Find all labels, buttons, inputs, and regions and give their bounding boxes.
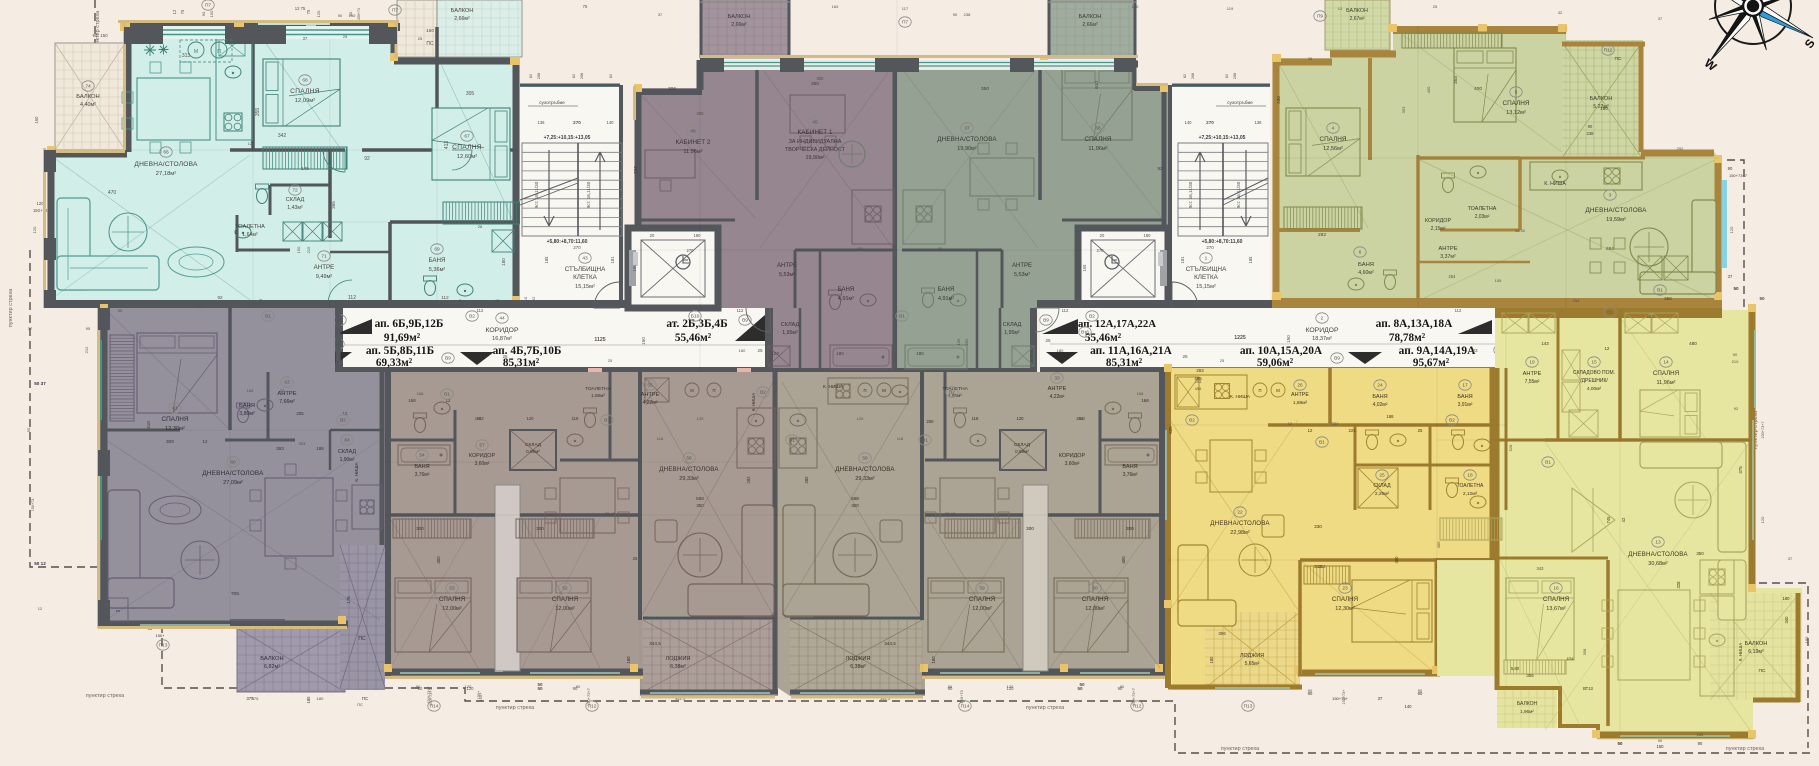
svg-text:2,03м²: 2,03м² bbox=[1475, 214, 1490, 220]
svg-text:СКЛАДОВО ПОМ.: СКЛАДОВО ПОМ. bbox=[1573, 370, 1615, 376]
svg-text:ап. 5Б,8Б,11Б: ап. 5Б,8Б,11Б bbox=[366, 345, 434, 357]
svg-text:400: 400 bbox=[436, 556, 441, 564]
svg-text:254: 254 bbox=[1449, 274, 1457, 279]
svg-text:64: 64 bbox=[344, 438, 350, 444]
svg-text:50: 50 bbox=[1759, 296, 1765, 301]
svg-text:82: 82 bbox=[572, 74, 576, 78]
svg-text:215: 215 bbox=[258, 298, 263, 305]
svg-text:118: 118 bbox=[572, 416, 579, 421]
svg-text:155: 155 bbox=[956, 338, 961, 345]
svg-text:400: 400 bbox=[1121, 556, 1126, 564]
svg-text:470: 470 bbox=[108, 190, 117, 196]
svg-text:270: 270 bbox=[1206, 120, 1214, 125]
svg-text:19,59м²: 19,59м² bbox=[1606, 217, 1626, 223]
svg-text:СПАЛНЯ: СПАЛНЯ bbox=[1543, 596, 1569, 603]
svg-text:270: 270 bbox=[687, 248, 695, 253]
svg-text:185: 185 bbox=[1248, 256, 1253, 264]
svg-text:42: 42 bbox=[1621, 517, 1626, 522]
svg-text:25: 25 bbox=[1220, 358, 1225, 363]
svg-text:150: 150 bbox=[296, 246, 301, 253]
svg-text:12: 12 bbox=[1338, 6, 1343, 11]
svg-text:90: 90 bbox=[338, 13, 343, 18]
svg-text:262: 262 bbox=[475, 416, 482, 421]
svg-text:КАБИНЕТ 2: КАБИНЕТ 2 bbox=[676, 139, 711, 146]
svg-text:3: 3 bbox=[1609, 193, 1612, 199]
svg-text:12,60м²: 12,60м² bbox=[457, 154, 477, 160]
svg-text:20: 20 bbox=[1100, 233, 1105, 238]
svg-text:123: 123 bbox=[771, 351, 779, 356]
svg-text:29,33м²: 29,33м² bbox=[855, 476, 875, 482]
svg-text:12: 12 bbox=[1288, 421, 1293, 426]
svg-text:СКЛАД: СКЛАД bbox=[338, 449, 356, 455]
svg-text:15,15м²: 15,15м² bbox=[1196, 284, 1216, 290]
svg-text:149: 149 bbox=[301, 166, 309, 171]
svg-text:12 75: 12 75 bbox=[295, 6, 306, 11]
svg-text:37: 37 bbox=[1378, 696, 1383, 701]
svg-text:282: 282 bbox=[746, 476, 751, 484]
svg-text:2,26м²: 2,26м² bbox=[1375, 491, 1390, 497]
svg-text:В1: В1 bbox=[1319, 440, 1325, 446]
svg-text:ПС: ПС bbox=[1759, 668, 1766, 674]
svg-text:4,22м²: 4,22м² bbox=[1050, 394, 1065, 400]
svg-text:25: 25 bbox=[1433, 4, 1438, 9]
svg-text:13,67м²: 13,67м² bbox=[1546, 606, 1566, 612]
svg-text:пунктир стреха: пунктир стреха bbox=[496, 705, 535, 711]
svg-text:78,78м²: 78,78м² bbox=[1389, 332, 1426, 344]
svg-text:АНТРЕ: АНТРЕ bbox=[777, 263, 797, 269]
svg-text:342: 342 bbox=[278, 133, 287, 139]
svg-text:344,5: 344,5 bbox=[884, 641, 896, 646]
svg-text:293: 293 bbox=[1196, 368, 1204, 373]
svg-text:В2: В2 bbox=[1189, 418, 1195, 424]
svg-text:112: 112 bbox=[932, 368, 939, 373]
svg-text:Вт6: Вт6 bbox=[1081, 330, 1089, 336]
svg-text:В9: В9 bbox=[742, 318, 748, 324]
svg-text:В2: В2 bbox=[1449, 418, 1455, 424]
svg-text:92: 92 bbox=[217, 295, 223, 300]
svg-text:120: 120 bbox=[1007, 684, 1014, 689]
svg-text:112: 112 bbox=[441, 295, 449, 300]
svg-text:3,80м²: 3,80м² bbox=[239, 411, 255, 417]
svg-text:СТЪЛБИЩНА: СТЪЛБИЩНА bbox=[565, 266, 606, 273]
svg-text:160: 160 bbox=[34, 116, 39, 124]
svg-text:КЛЕТКА: КЛЕТКА bbox=[1194, 274, 1219, 281]
svg-text:68: 68 bbox=[302, 78, 308, 84]
svg-text:АНТРЕ: АНТРЕ bbox=[1523, 371, 1542, 377]
svg-text:КЛЕТКА: КЛЕТКА bbox=[573, 274, 598, 281]
svg-text:150+73: 150+73 bbox=[31, 499, 35, 512]
svg-text:В1: В1 bbox=[604, 418, 610, 424]
svg-text:340: 340 bbox=[1784, 616, 1789, 624]
svg-text:ДНЕВНА/СТОЛОВА: ДНЕВНА/СТОЛОВА bbox=[835, 466, 895, 473]
svg-text:50 12: 50 12 bbox=[34, 561, 46, 566]
svg-text:45: 45 bbox=[812, 120, 818, 126]
svg-text:55,46м²: 55,46м² bbox=[675, 332, 712, 344]
svg-text:4: 4 bbox=[1332, 126, 1335, 132]
svg-text:ДНЕВНА/СТОЛОВА: ДНЕВНА/СТОЛОВА bbox=[1585, 207, 1647, 214]
svg-text:180: 180 bbox=[306, 696, 311, 704]
svg-text:350: 350 bbox=[811, 81, 819, 87]
svg-text:ДНЕВНА/СТОЛОВА: ДНЕВНА/СТОЛОВА bbox=[1210, 520, 1270, 527]
svg-text:90: 90 bbox=[348, 11, 353, 16]
svg-text:2: 2 bbox=[1321, 316, 1324, 322]
svg-text:61: 61 bbox=[172, 406, 178, 412]
svg-text:120: 120 bbox=[697, 416, 704, 421]
svg-text:ДНЕВНА/СТОЛОВА: ДНЕВНА/СТОЛОВА bbox=[937, 136, 997, 143]
svg-text:105: 105 bbox=[1495, 278, 1502, 283]
svg-text:160: 160 bbox=[1132, 4, 1139, 9]
svg-text:ТОАЛЕТНА: ТОАЛЕТНА bbox=[1468, 206, 1497, 212]
svg-text:112: 112 bbox=[477, 308, 484, 313]
svg-text:92: 92 bbox=[198, 304, 203, 309]
svg-text:205: 205 bbox=[296, 411, 304, 416]
svg-text:П: П bbox=[217, 49, 221, 55]
svg-text:238: 238 bbox=[1587, 131, 1595, 136]
svg-text:БАЛКОН: БАЛКОН bbox=[1346, 8, 1368, 14]
svg-text:75: 75 bbox=[583, 4, 588, 9]
svg-text:4,91м²: 4,91м² bbox=[938, 296, 954, 302]
svg-text:306: 306 bbox=[697, 111, 705, 116]
svg-text:1125: 1125 bbox=[594, 337, 605, 343]
svg-text:1225: 1225 bbox=[1234, 335, 1246, 341]
svg-text:60: 60 bbox=[230, 460, 236, 466]
svg-text:90: 90 bbox=[26, 427, 31, 432]
svg-text:СПАЛНЯ: СПАЛНЯ bbox=[161, 416, 188, 423]
svg-text:пунктир стреха: пунктир стреха bbox=[86, 693, 125, 699]
svg-text:В2: В2 bbox=[760, 390, 766, 396]
svg-text:270: 270 bbox=[573, 120, 581, 125]
svg-text:П13: П13 bbox=[1244, 704, 1253, 710]
svg-text:43: 43 bbox=[582, 256, 588, 262]
svg-text:Б: Б bbox=[459, 298, 462, 303]
svg-text:270: 270 bbox=[573, 245, 581, 250]
svg-text:ДНЕВНА/СТОЛОВА: ДНЕВНА/СТОЛОВА bbox=[1628, 551, 1688, 558]
svg-text:26: 26 bbox=[1308, 56, 1313, 61]
svg-text:12,00м²: 12,00м² bbox=[442, 606, 462, 612]
svg-text:БАЛКОН: БАЛКОН bbox=[76, 94, 99, 100]
svg-text:69,33м²: 69,33м² bbox=[376, 357, 413, 369]
svg-text:25 48: 25 48 bbox=[605, 511, 616, 516]
svg-text:СПАЛНЯ: СПАЛНЯ bbox=[969, 596, 995, 603]
svg-text:254: 254 bbox=[1573, 298, 1580, 303]
svg-text:90: 90 bbox=[1658, 738, 1663, 743]
svg-text:12: 12 bbox=[203, 439, 208, 444]
svg-text:1: 1 bbox=[1205, 256, 1208, 262]
svg-text:180: 180 bbox=[1783, 596, 1791, 601]
svg-text:25: 25 bbox=[1418, 428, 1423, 433]
svg-text:СКЛАД: СКЛАД bbox=[286, 197, 305, 203]
svg-text:12 50: 12 50 bbox=[1515, 228, 1526, 233]
svg-text:92: 92 bbox=[364, 156, 370, 162]
svg-text:КОРИДОР: КОРИДОР bbox=[1425, 218, 1452, 224]
svg-text:Б10: Б10 bbox=[691, 314, 700, 320]
svg-text:150: 150 bbox=[1286, 335, 1291, 343]
svg-text:27,09м²: 27,09м² bbox=[223, 480, 243, 486]
svg-text:57: 57 bbox=[479, 443, 485, 449]
svg-text:82: 82 bbox=[1183, 74, 1187, 78]
svg-text:3,60м²: 3,60м² bbox=[1065, 461, 1080, 467]
svg-text:120: 120 bbox=[316, 10, 321, 17]
svg-text:5,65м²: 5,65м² bbox=[1245, 661, 1260, 667]
svg-text:В9: В9 bbox=[1334, 356, 1340, 362]
svg-text:СКЛАД: СКЛАД bbox=[1014, 442, 1031, 448]
svg-text:150: 150 bbox=[641, 337, 646, 345]
svg-text:БАНЯ: БАНЯ bbox=[838, 287, 854, 293]
svg-text:82: 82 bbox=[529, 74, 533, 78]
svg-text:300: 300 bbox=[1126, 526, 1134, 531]
svg-text:136: 136 bbox=[538, 120, 546, 125]
svg-text:180: 180 bbox=[739, 348, 746, 353]
svg-text:ат. 2Б,3Б,4Б: ат. 2Б,3Б,4Б bbox=[666, 318, 727, 330]
svg-text:26: 26 bbox=[1297, 383, 1303, 389]
svg-text:168: 168 bbox=[1141, 398, 1149, 403]
svg-text:150: 150 bbox=[1657, 744, 1665, 749]
svg-text:37: 37 bbox=[1728, 274, 1733, 279]
svg-text:В1: В1 bbox=[265, 314, 271, 320]
svg-text:300: 300 bbox=[166, 439, 174, 445]
svg-text:25: 25 bbox=[608, 358, 613, 363]
svg-text:СПАЛНЯ: СПАЛНЯ bbox=[1653, 370, 1679, 377]
svg-text:22: 22 bbox=[1237, 510, 1243, 516]
svg-text:188: 188 bbox=[316, 446, 324, 451]
svg-text:2,66м²: 2,66м² bbox=[1082, 22, 1098, 28]
svg-text:25: 25 bbox=[418, 36, 423, 41]
svg-text:375: 375 bbox=[1738, 466, 1743, 474]
svg-text:+5,80:+8,70:11,60: +5,80:+8,70:11,60 bbox=[547, 239, 588, 245]
svg-text:К. НИША: К. НИША bbox=[1230, 394, 1251, 400]
svg-text:П7: П7 bbox=[902, 20, 908, 26]
svg-text:22,98м²: 22,98м² bbox=[1230, 530, 1250, 536]
svg-text:7,55м²: 7,55м² bbox=[1525, 379, 1540, 385]
svg-text:92: 92 bbox=[1157, 166, 1163, 171]
svg-text:185: 185 bbox=[544, 256, 549, 264]
svg-text:П: П bbox=[863, 388, 866, 393]
svg-text:пунктир стреха: пунктир стреха bbox=[1726, 746, 1765, 752]
svg-text:ПС: ПС bbox=[362, 696, 368, 701]
svg-text:393: 393 bbox=[299, 441, 306, 446]
svg-text:120: 120 bbox=[1729, 226, 1734, 233]
svg-text:350: 350 bbox=[696, 503, 704, 508]
svg-text:180: 180 bbox=[836, 351, 844, 356]
svg-text:В1: В1 bbox=[1607, 310, 1613, 316]
svg-text:ПС: ПС bbox=[358, 636, 366, 642]
svg-text:328: 328 bbox=[1676, 581, 1681, 589]
svg-text:168: 168 bbox=[408, 398, 416, 403]
svg-text:БАЛКОН: БАЛКОН bbox=[1590, 96, 1613, 102]
svg-text:25: 25 bbox=[757, 348, 763, 353]
svg-text:0,89м²: 0,89м² bbox=[1015, 449, 1029, 454]
svg-text:12: 12 bbox=[248, 141, 253, 146]
svg-text:350: 350 bbox=[1664, 296, 1672, 301]
svg-text:37: 37 bbox=[1658, 16, 1663, 21]
svg-text:СПАЛНЯ: СПАЛНЯ bbox=[1319, 136, 1346, 143]
svg-text:23: 23 bbox=[1472, 348, 1478, 353]
svg-text:117: 117 bbox=[902, 6, 909, 11]
svg-text:180: 180 bbox=[916, 351, 924, 356]
svg-text:705: 705 bbox=[231, 591, 239, 597]
svg-text:350: 350 bbox=[981, 86, 989, 92]
svg-text:300: 300 bbox=[1026, 526, 1034, 531]
svg-text:112: 112 bbox=[1062, 308, 1069, 313]
svg-text:56: 56 bbox=[686, 456, 692, 462]
svg-text:82: 82 bbox=[609, 74, 613, 78]
svg-text:БАЛКОН: БАЛКОН bbox=[451, 8, 474, 14]
svg-text:25: 25 bbox=[633, 556, 638, 561]
svg-text:ТОАЛЕТНА: ТОАЛЕТНА bbox=[235, 224, 265, 230]
svg-text:120: 120 bbox=[32, 226, 37, 233]
svg-text:12: 12 bbox=[38, 606, 43, 611]
svg-text:5: 5 bbox=[1515, 90, 1518, 96]
svg-text:БАЛКОН: БАЛКОН bbox=[1079, 14, 1102, 20]
svg-text:306: 306 bbox=[1218, 631, 1226, 636]
svg-text:480: 480 bbox=[1689, 341, 1697, 346]
svg-text:38: 38 bbox=[1095, 126, 1101, 132]
svg-text:В2: В2 bbox=[949, 390, 955, 396]
svg-text:375: 375 bbox=[252, 696, 259, 701]
svg-text:90: 90 bbox=[948, 684, 953, 689]
svg-text:М: М bbox=[690, 388, 694, 393]
svg-text:90: 90 bbox=[1698, 741, 1703, 746]
svg-text:12: 12 bbox=[172, 9, 177, 14]
svg-text:17: 17 bbox=[1462, 383, 1468, 389]
svg-text:91,69м²: 91,69м² bbox=[384, 332, 421, 344]
svg-text:24: 24 bbox=[1377, 383, 1383, 389]
svg-text:+7,25:+10,15:+13,05: +7,25:+10,15:+13,05 bbox=[544, 135, 591, 141]
svg-text:9ст. 16,11/30: 9ст. 16,11/30 bbox=[1236, 181, 1241, 208]
svg-text:ТВОРЧЕСКА ДЕЙНОСТ: ТВОРЧЕСКА ДЕЙНОСТ bbox=[785, 145, 846, 153]
svg-text:2,66м²: 2,66м² bbox=[454, 16, 470, 22]
svg-text:3,76м²: 3,76м² bbox=[415, 472, 430, 478]
svg-text:90: 90 bbox=[1728, 166, 1733, 171]
svg-text:4,00м²: 4,00м² bbox=[1587, 386, 1602, 392]
svg-text:221: 221 bbox=[1332, 421, 1339, 426]
svg-text:270: 270 bbox=[1097, 248, 1105, 253]
svg-text:59,06м²: 59,06м² bbox=[1257, 357, 1294, 369]
svg-text:ПС: ПС bbox=[357, 702, 363, 707]
svg-text:В9: В9 bbox=[445, 356, 451, 362]
svg-text:3,37м²: 3,37м² bbox=[1440, 254, 1456, 260]
svg-text:В1: В1 bbox=[899, 314, 905, 320]
svg-text:120: 120 bbox=[1017, 416, 1025, 421]
svg-text:262: 262 bbox=[964, 338, 969, 345]
svg-text:112: 112 bbox=[737, 308, 744, 313]
svg-text:95: 95 bbox=[86, 326, 91, 331]
svg-text:268: 268 bbox=[537, 73, 541, 79]
svg-text:пунктир стреха: пунктир стреха bbox=[1221, 746, 1260, 752]
svg-text:П7: П7 bbox=[205, 3, 211, 9]
svg-text:25: 25 bbox=[1182, 354, 1188, 359]
svg-text:67: 67 bbox=[464, 134, 470, 140]
svg-text:528: 528 bbox=[1508, 444, 1513, 451]
svg-text:262: 262 bbox=[1079, 416, 1086, 421]
svg-text:ПС: ПС bbox=[426, 41, 434, 47]
svg-text:5,53м²: 5,53м² bbox=[1014, 272, 1030, 278]
svg-text:635: 635 bbox=[1168, 426, 1173, 434]
svg-text:К. НИША: К. НИША bbox=[1544, 181, 1566, 187]
svg-text:90: 90 bbox=[1588, 124, 1593, 129]
svg-text:72: 72 bbox=[292, 188, 298, 194]
svg-text:В1: В1 bbox=[444, 392, 450, 398]
svg-text:В1: В1 bbox=[789, 438, 795, 444]
svg-text:АНТРЕ: АНТРЕ bbox=[314, 264, 335, 271]
svg-text:165: 165 bbox=[1082, 264, 1087, 272]
svg-text:118: 118 bbox=[972, 416, 979, 421]
svg-text:140: 140 bbox=[1405, 704, 1413, 709]
svg-text:СПАЛНЯ: СПАЛНЯ bbox=[1332, 596, 1358, 603]
svg-text:168: 168 bbox=[247, 388, 254, 393]
svg-text:53: 53 bbox=[449, 586, 455, 592]
svg-text:К. НИША: К. НИША bbox=[1738, 643, 1743, 661]
svg-text:160: 160 bbox=[426, 28, 434, 34]
svg-text:120: 120 bbox=[1760, 516, 1765, 523]
svg-text:23: 23 bbox=[1342, 586, 1348, 592]
svg-text:330: 330 bbox=[1314, 524, 1322, 529]
svg-text:5,80: 5,80 bbox=[1511, 666, 1520, 671]
svg-text:50: 50 bbox=[1079, 682, 1085, 687]
svg-text:25: 25 bbox=[502, 354, 508, 359]
svg-text:150+73+: 150+73+ bbox=[1342, 689, 1346, 705]
svg-text:150: 150 bbox=[209, 10, 214, 17]
svg-text:37: 37 bbox=[303, 36, 308, 41]
svg-text:16: 16 bbox=[1553, 586, 1559, 592]
svg-text:455: 455 bbox=[1195, 386, 1202, 391]
svg-text:292: 292 bbox=[1318, 232, 1326, 238]
svg-text:13: 13 bbox=[1655, 540, 1661, 546]
svg-text:1,43м²: 1,43м² bbox=[287, 205, 303, 211]
svg-text:90: 90 bbox=[93, 33, 98, 38]
svg-text:120: 120 bbox=[527, 416, 535, 421]
svg-text:М: М bbox=[194, 49, 198, 55]
svg-text:БАЛКОН: БАЛКОН bbox=[260, 656, 283, 662]
svg-text:К. НИША: К. НИША bbox=[751, 393, 756, 411]
svg-text:БАНЯ: БАНЯ bbox=[1122, 464, 1137, 470]
svg-text:393: 393 bbox=[276, 446, 284, 451]
svg-text:180: 180 bbox=[1804, 636, 1809, 643]
svg-text:180: 180 bbox=[1144, 233, 1152, 238]
svg-text:46: 46 bbox=[690, 129, 696, 135]
svg-text:пунктир стреха: пунктир стреха bbox=[1026, 705, 1065, 711]
svg-text:БАЛКОН: БАЛКОН bbox=[1745, 641, 1768, 647]
svg-text:сухотръбие: сухотръбие bbox=[1227, 100, 1253, 106]
svg-text:АНТРЕ: АНТРЕ bbox=[1291, 392, 1309, 398]
svg-text:15,15м²: 15,15м² bbox=[575, 284, 595, 290]
svg-text:143: 143 bbox=[1541, 341, 1549, 346]
svg-text:313: 313 bbox=[1319, 564, 1327, 569]
svg-text:71: 71 bbox=[321, 254, 327, 260]
svg-text:92: 92 bbox=[1734, 406, 1739, 411]
svg-text:П: П bbox=[1258, 388, 1261, 393]
svg-text:353: 353 bbox=[1401, 106, 1406, 113]
svg-text:19,90м²: 19,90м² bbox=[806, 155, 825, 161]
svg-text:25: 25 bbox=[1045, 338, 1051, 343]
svg-text:П14: П14 bbox=[961, 704, 970, 710]
svg-text:БАЛКОН: БАЛКОН bbox=[1517, 701, 1538, 707]
svg-text:12,00м²: 12,00м² bbox=[555, 606, 575, 612]
svg-text:СПАЛНЯ: СПАЛНЯ bbox=[1502, 100, 1529, 107]
svg-text:400: 400 bbox=[1474, 86, 1482, 92]
svg-text:3,91м²: 3,91м² bbox=[1458, 402, 1473, 408]
svg-text:90: 90 bbox=[1308, 688, 1313, 693]
svg-text:СКЛАД: СКЛАД bbox=[525, 442, 542, 448]
svg-text:95: 95 bbox=[118, 308, 123, 313]
svg-text:БАНЯ: БАНЯ bbox=[1372, 394, 1387, 400]
svg-text:КОРИДОР: КОРИДОР bbox=[469, 453, 496, 459]
svg-text:12,00м²: 12,00м² bbox=[972, 606, 992, 612]
svg-text:32: 32 bbox=[1558, 10, 1563, 15]
svg-text:4,60м²: 4,60м² bbox=[1358, 270, 1374, 276]
svg-text:143: 143 bbox=[1647, 314, 1654, 319]
svg-text:19: 19 bbox=[1529, 360, 1535, 366]
